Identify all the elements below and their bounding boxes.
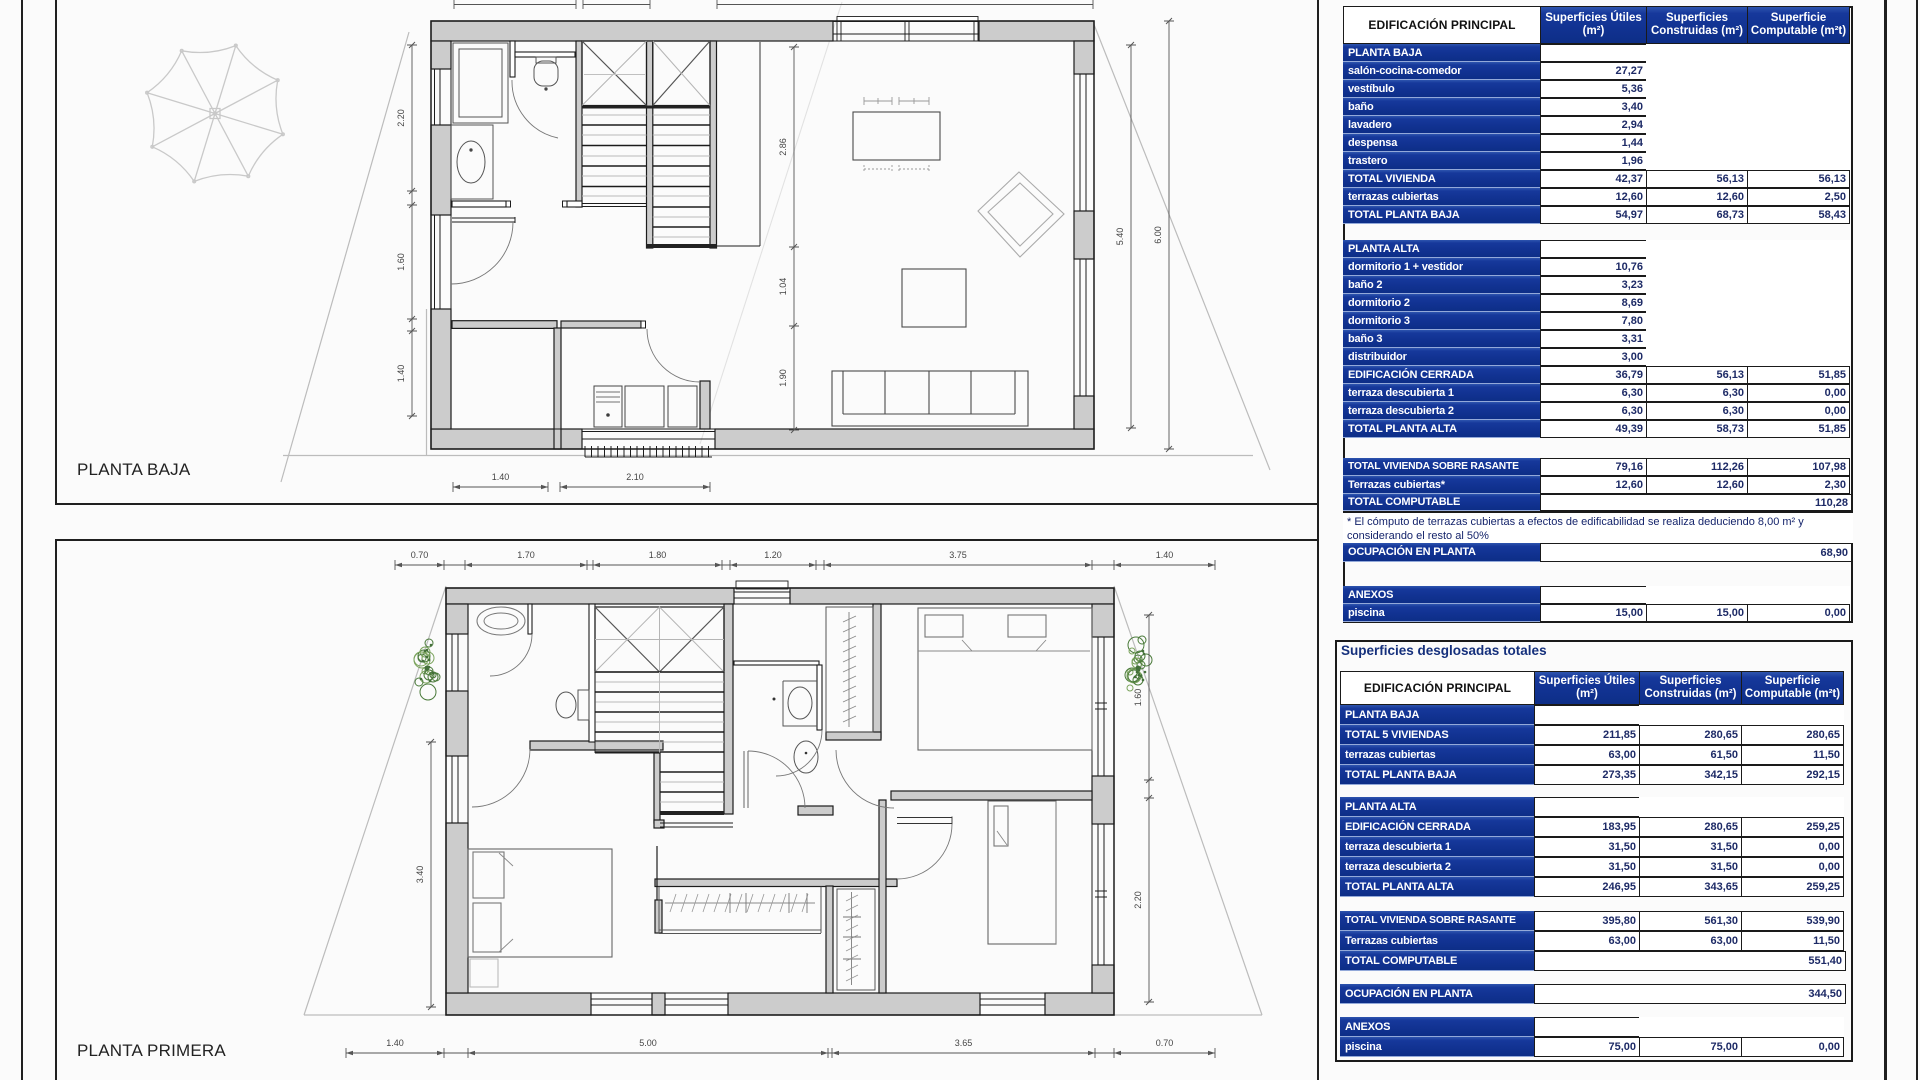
svg-text:1.04: 1.04 — [778, 278, 788, 296]
svg-text:6.00: 6.00 — [1153, 226, 1163, 244]
svg-text:3.40: 3.40 — [415, 866, 425, 884]
svg-text:2.20: 2.20 — [1133, 891, 1143, 909]
svg-text:2.10: 2.10 — [626, 472, 644, 482]
svg-text:1.90: 1.90 — [778, 369, 788, 387]
svg-text:1.20: 1.20 — [764, 550, 782, 560]
svg-text:3.75: 3.75 — [949, 550, 967, 560]
svg-text:3.65: 3.65 — [955, 1038, 973, 1048]
svg-text:1.40: 1.40 — [396, 365, 406, 383]
svg-text:1.40: 1.40 — [386, 1038, 404, 1048]
svg-text:2.20: 2.20 — [396, 109, 406, 127]
svg-text:1.70: 1.70 — [517, 550, 535, 560]
svg-text:5.00: 5.00 — [639, 1038, 657, 1048]
svg-text:0.70: 0.70 — [1156, 1038, 1174, 1048]
svg-text:5.40: 5.40 — [1115, 228, 1125, 246]
svg-text:1.40: 1.40 — [1156, 550, 1174, 560]
svg-text:1.60: 1.60 — [1133, 689, 1143, 707]
svg-text:2.86: 2.86 — [778, 138, 788, 156]
svg-text:0.70: 0.70 — [411, 550, 429, 560]
svg-text:1.80: 1.80 — [649, 550, 667, 560]
svg-text:1.60: 1.60 — [396, 253, 406, 271]
svg-text:1.40: 1.40 — [492, 472, 510, 482]
